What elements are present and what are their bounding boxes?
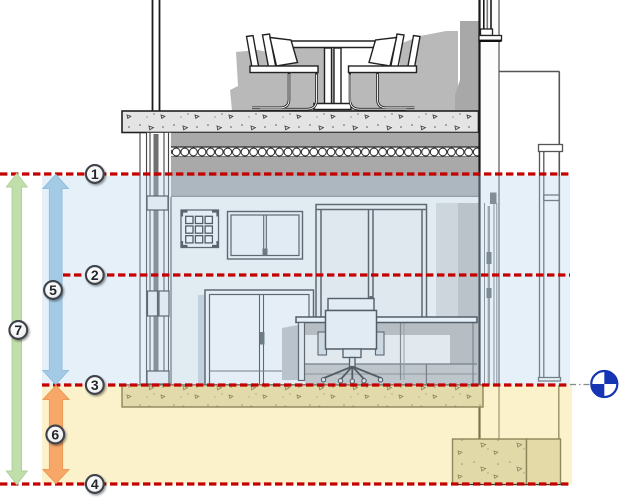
svg-text:2: 2 bbox=[91, 267, 99, 283]
svg-text:7: 7 bbox=[14, 322, 22, 338]
svg-text:6: 6 bbox=[51, 426, 59, 442]
svg-text:1: 1 bbox=[91, 166, 99, 182]
svg-text:3: 3 bbox=[91, 377, 99, 393]
svg-text:5: 5 bbox=[49, 282, 57, 298]
svg-text:4: 4 bbox=[91, 476, 99, 492]
